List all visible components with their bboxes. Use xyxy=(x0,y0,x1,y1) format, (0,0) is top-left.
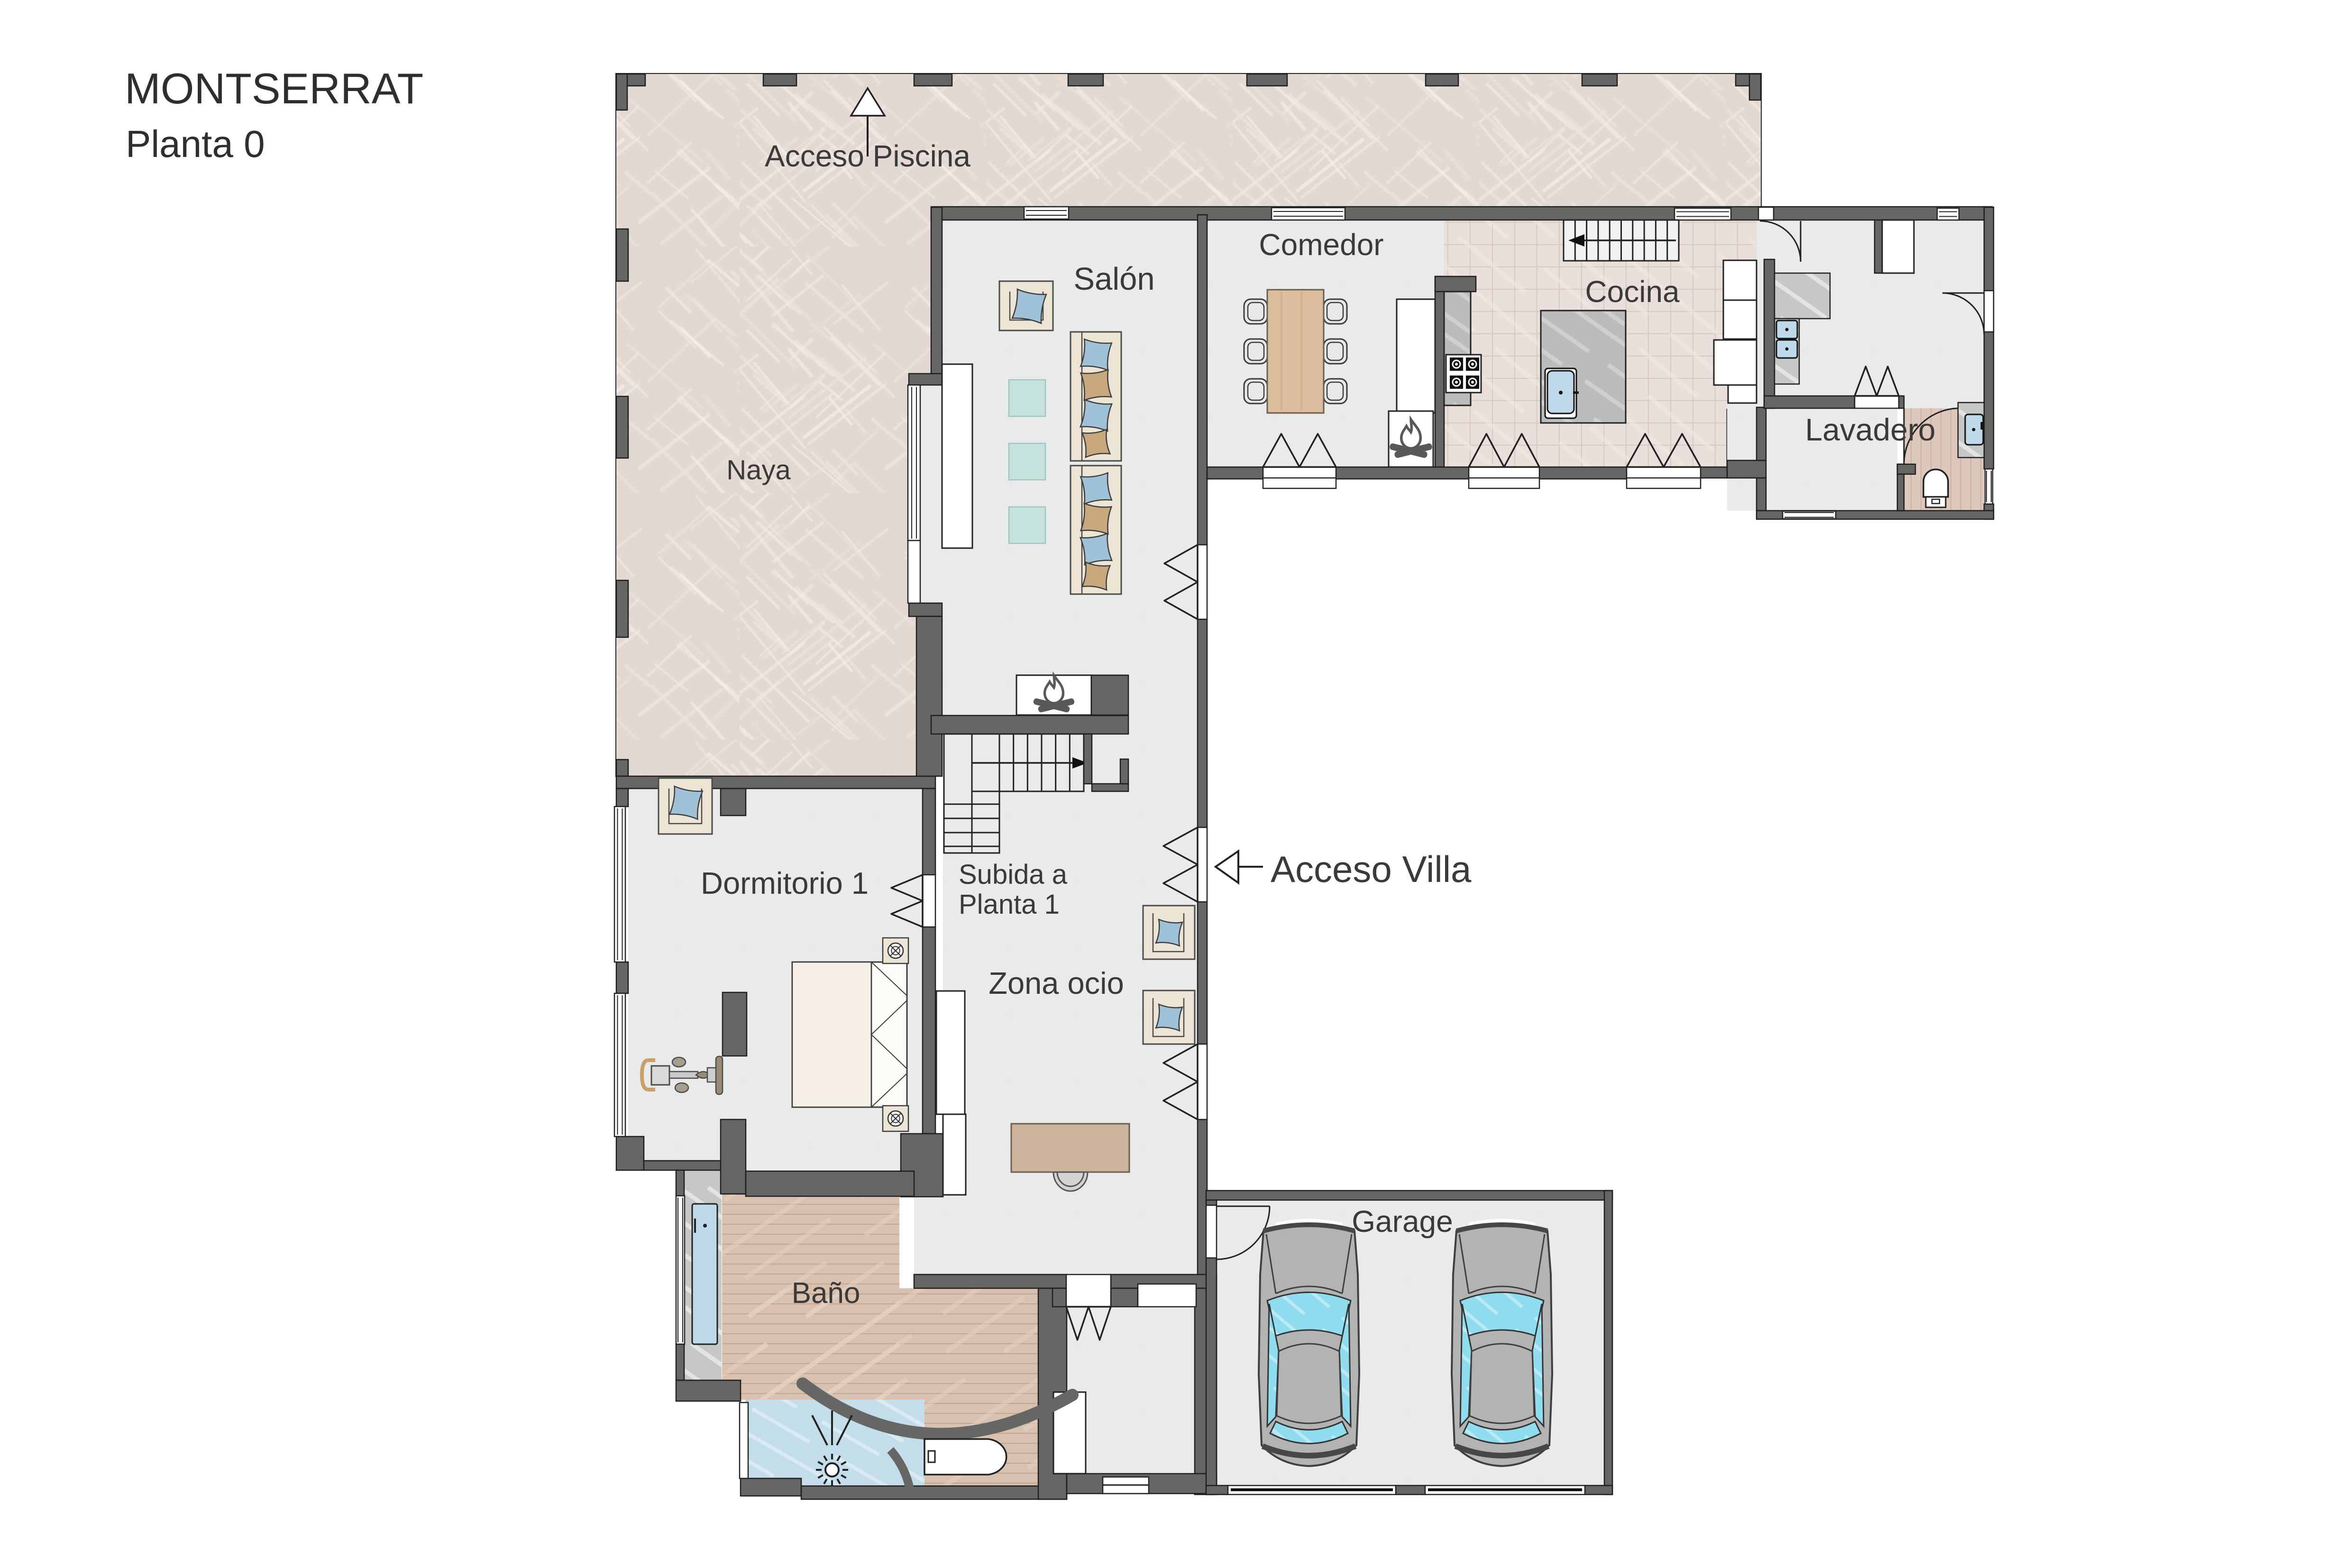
svg-text:Lavadero: Lavadero xyxy=(1805,412,1935,447)
svg-text:Planta 0: Planta 0 xyxy=(126,123,265,165)
svg-text:Dormitorio 1: Dormitorio 1 xyxy=(701,866,869,900)
svg-text:Subida a: Subida a xyxy=(959,859,1068,890)
svg-text:Zona ocio: Zona ocio xyxy=(988,966,1124,1000)
svg-text:Salón: Salón xyxy=(1073,261,1154,297)
svg-text:Cocina: Cocina xyxy=(1585,275,1680,309)
svg-text:Garage: Garage xyxy=(1352,1204,1453,1238)
svg-text:Naya: Naya xyxy=(726,455,791,486)
svg-text:Acceso Villa: Acceso Villa xyxy=(1271,848,1472,890)
svg-text:MONTSERRAT: MONTSERRAT xyxy=(125,65,423,113)
svg-text:Planta 1: Planta 1 xyxy=(959,889,1060,920)
svg-text:Comedor: Comedor xyxy=(1259,228,1383,262)
svg-text:Acceso Piscina: Acceso Piscina xyxy=(765,139,970,173)
svg-text:Baño: Baño xyxy=(792,1277,860,1310)
